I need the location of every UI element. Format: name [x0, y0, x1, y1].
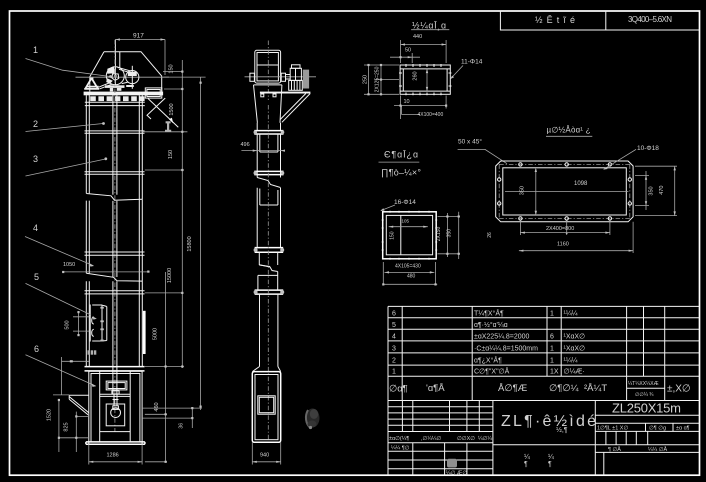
svg-text:∅∅X∅: ∅∅X∅ [457, 435, 475, 442]
svg-text:∅ɑ¶: ∅ɑ¶ [389, 384, 408, 395]
svg-text:¹XɑX∅: ¹XɑX∅ [564, 345, 586, 352]
svg-text:µ∅½Åòɑ¹ ¿: µ∅½Åòɑ¹ ¿ [547, 126, 591, 135]
svg-text:3: 3 [33, 154, 38, 164]
svg-text:10-Φ18: 10-Φ18 [637, 145, 659, 152]
svg-text:²Å¼T: ²Å¼T [584, 383, 607, 394]
svg-text:∅¶ ∅g: ∅¶ ∅g [649, 425, 666, 432]
svg-text:1: 1 [550, 345, 554, 352]
svg-text:1500: 1500 [169, 103, 175, 115]
svg-text:825: 825 [64, 422, 70, 431]
svg-text:50: 50 [405, 48, 411, 54]
svg-text:∅¶∅¼: ∅¶∅¼ [549, 383, 580, 394]
svg-text:½,¶: ½,¶ [556, 426, 568, 434]
svg-text:5000: 5000 [153, 328, 159, 340]
svg-text:¼: ¼ [524, 454, 530, 461]
svg-text:260: 260 [412, 71, 418, 80]
svg-text:3: 3 [392, 345, 396, 352]
svg-text:6: 6 [392, 310, 396, 317]
svg-text:3Q400–5.6XN: 3Q400–5.6XN [628, 15, 672, 24]
svg-text:±ɑ∅(¼¶: ±ɑ∅(¼¶ [389, 435, 409, 442]
svg-text:¼∅¼: ¼∅¼ [478, 435, 492, 442]
svg-text:350: 350 [520, 186, 526, 195]
svg-text:15800: 15800 [187, 236, 193, 251]
svg-text:350: 350 [648, 186, 654, 195]
svg-text:±ɑ ɑ¶: ±ɑ ɑ¶ [676, 426, 690, 432]
svg-text:¶: ¶ [548, 461, 552, 468]
svg-text:2X400=800: 2X400=800 [546, 226, 574, 232]
svg-text:150: 150 [169, 64, 175, 73]
svg-text:1520: 1520 [47, 409, 53, 421]
svg-text:¼∅ Æ∅: ¼∅ Æ∅ [446, 470, 467, 477]
svg-text:½¼ɑĪ¸ɑ: ½¼ɑĪ¸ɑ [412, 21, 446, 31]
svg-text:917: 917 [133, 33, 144, 40]
svg-text:105: 105 [402, 218, 410, 223]
svg-text:2: 2 [392, 358, 396, 365]
svg-text:1: 1 [550, 310, 554, 317]
svg-text:1286: 1286 [107, 453, 119, 459]
svg-text:2: 2 [33, 119, 38, 129]
svg-text:500: 500 [65, 320, 71, 329]
svg-text:460: 460 [154, 402, 160, 411]
svg-text:4: 4 [33, 223, 38, 233]
svg-text:ɑ¶¿X°Å¶: ɑ¶¿X°Å¶ [474, 356, 502, 365]
svg-text:ZL250X15m: ZL250X15m [612, 401, 681, 416]
svg-text:1: 1 [392, 369, 396, 376]
svg-text:50 x 45°: 50 x 45° [458, 138, 482, 146]
svg-text:440: 440 [413, 34, 422, 40]
svg-text:'ɑ¶Å: 'ɑ¶Å [426, 383, 445, 394]
svg-text:1X: 1X [550, 369, 559, 376]
svg-text:2X125=250: 2X125=250 [375, 66, 381, 92]
svg-text:¹¼¼: ¹¼¼ [564, 358, 578, 365]
svg-text:1: 1 [550, 358, 554, 365]
svg-text:36: 36 [179, 423, 185, 429]
svg-text:∅¼Æ·: ∅¼Æ· [564, 369, 585, 376]
svg-text:150: 150 [168, 150, 174, 159]
svg-text:±ɑX225¼.8=2000: ±ɑX225¼.8=2000 [474, 333, 530, 340]
svg-text:∏¶ò–¼×°: ∏¶ò–¼×° [381, 168, 421, 179]
svg-text:1∅¶L ±1 X∅: 1∅¶L ±1 X∅ [597, 425, 628, 432]
svg-text:¼¼ ¶∅: ¼¼ ¶∅ [391, 445, 410, 452]
svg-text:T¼¶X°Å¶: T¼¶X°Å¶ [474, 308, 504, 317]
svg-text:16-Φ14: 16-Φ14 [394, 199, 416, 206]
svg-text:1098: 1098 [574, 181, 588, 187]
svg-text:±,X∅: ±,X∅ [667, 384, 691, 395]
svg-text:1160: 1160 [557, 242, 569, 248]
svg-text:¹XɑX∅: ¹XɑX∅ [564, 333, 586, 340]
svg-text:5: 5 [392, 322, 396, 329]
svg-text:350: 350 [447, 229, 453, 238]
svg-text:ZL¶·ê½ìdé: ZL¶·ê½ìdé [501, 413, 596, 430]
svg-text:1050: 1050 [63, 262, 75, 268]
svg-text:¶ ∅Å: ¶ ∅Å [608, 446, 621, 453]
svg-text:¼¼ ∅Å: ¼¼ ∅Å [648, 446, 667, 453]
svg-text:940: 940 [260, 453, 269, 459]
svg-text:10: 10 [404, 99, 410, 105]
svg-text:¹¼¼: ¹¼¼ [564, 310, 578, 317]
svg-text:6: 6 [34, 344, 39, 354]
svg-text:15000: 15000 [167, 268, 173, 283]
svg-text:∅∅¼ ¾: ∅∅¼ ¾ [635, 392, 654, 398]
svg-text:150: 150 [389, 231, 395, 240]
svg-text:¶: ¶ [524, 461, 528, 468]
svg-text:4X105=430: 4X105=430 [395, 264, 421, 270]
svg-text:496: 496 [241, 142, 250, 148]
svg-text:,∅¼¼∅: ,∅¼¼∅ [421, 435, 441, 442]
svg-text:480: 480 [407, 273, 416, 279]
svg-text:C∅¶"X"∅Å: C∅¶"X"∅Å [474, 367, 510, 376]
svg-text:Є¶ɑĪ¿ɑ: Є¶ɑĪ¿ɑ [384, 150, 418, 160]
svg-text:Å∅¶Æ: Å∅¶Æ [498, 383, 528, 394]
svg-text:5: 5 [34, 272, 39, 282]
svg-text:4: 4 [392, 333, 396, 340]
svg-text:¼: ¼ [548, 454, 554, 461]
svg-text:250: 250 [363, 75, 369, 84]
svg-text:26: 26 [487, 232, 493, 238]
svg-text:470: 470 [659, 186, 665, 195]
svg-text:11-Φ14: 11-Φ14 [461, 59, 483, 66]
svg-text:4X100=400: 4X100=400 [418, 112, 444, 118]
svg-text:ɑ¶·½°ɑ'¼ɑ: ɑ¶·½°ɑ'¼ɑ [474, 321, 508, 329]
svg-text:6: 6 [550, 333, 554, 340]
svg-text:2X150: 2X150 [436, 227, 442, 242]
svg-text:·C±ɑ¼¼.8=1500mm: ·C±ɑ¼¼.8=1500mm [474, 345, 538, 352]
svg-text:¼T¼XX¼XÆ: ¼T¼XX¼XÆ [628, 381, 659, 387]
svg-text:1: 1 [33, 45, 38, 55]
